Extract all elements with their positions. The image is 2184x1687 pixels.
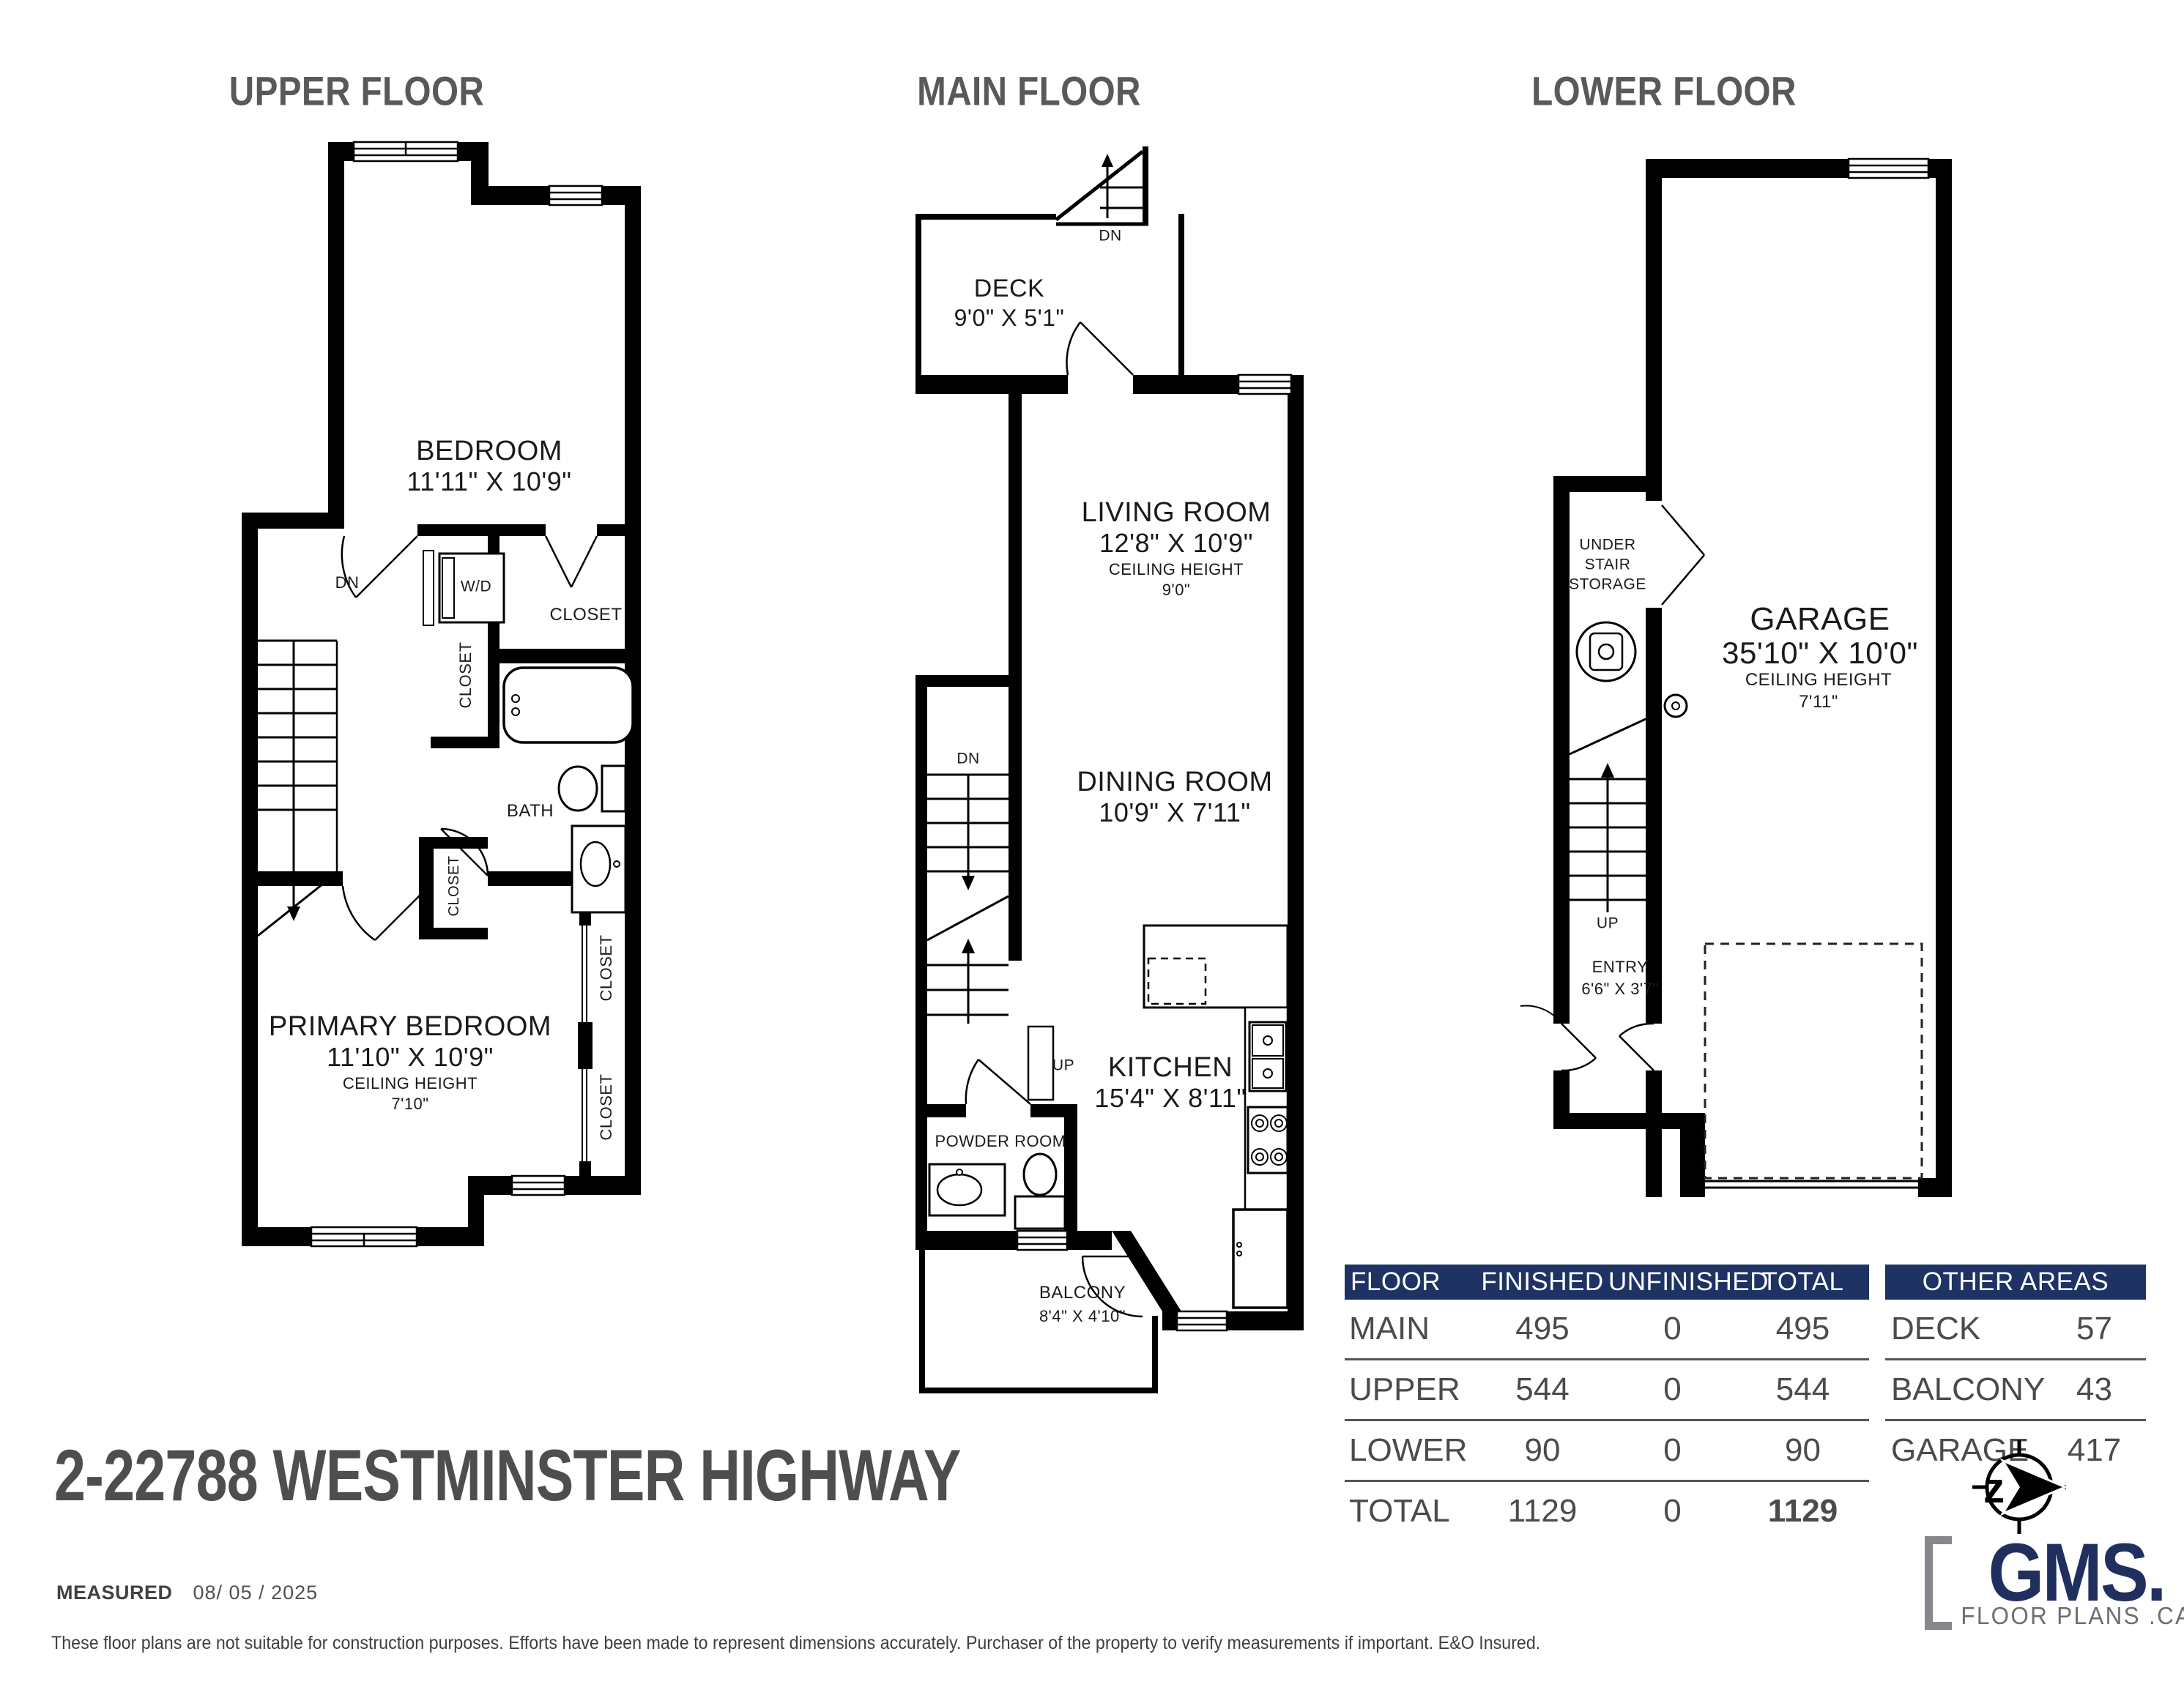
bedroom-label: BEDROOM (416, 437, 562, 465)
compass-letter: z (1983, 1464, 2005, 1512)
closet-label: CLOSET (549, 606, 622, 624)
table-row: DECK 57 (1885, 1300, 2146, 1360)
gms-logo: GMS. FLOOR PLANS .CA (1925, 1536, 2184, 1630)
table-row: BALCONY 43 (1885, 1360, 2146, 1421)
closet-label: CLOSET (447, 855, 461, 916)
kitchen-dims: 15'4" X 8'11" (1094, 1085, 1246, 1111)
under-stair-storage-label: STORAGE (1569, 577, 1646, 592)
col-header-total: TOTAL (1737, 1267, 1869, 1297)
closet-label: CLOSET (458, 641, 474, 708)
floor-plan-sheet: { "header": { "title": "2-22788 WESTMINS… (0, 0, 2184, 1687)
entry-label: ENTRY (1592, 959, 1649, 975)
ceiling-height-label: CEILING HEIGHT (1109, 562, 1244, 578)
ceiling-height-value: 7'10" (391, 1096, 428, 1112)
measured-label: MEASURED (56, 1582, 173, 1604)
balcony-dims: 8'4" X 4'10" (1039, 1308, 1126, 1325)
living-room-label: LIVING ROOM (1082, 499, 1271, 526)
dining-room-dims: 10'9" X 7'11" (1099, 800, 1250, 826)
ceiling-height-value: 7'11" (1799, 693, 1838, 711)
kitchen-label: KITCHEN (1108, 1054, 1233, 1081)
bath-label: BATH (507, 802, 554, 820)
up-label: UP (1052, 1058, 1074, 1073)
col-header-unfinished: UNFINISHED (1608, 1267, 1737, 1297)
measured-date: 08/ 05 / 2025 (193, 1582, 319, 1604)
powder-room-label: POWDER ROOM (935, 1133, 1066, 1150)
table-row-total: TOTAL 1129 0 1129 (1345, 1482, 1869, 1541)
table-row: MAIN 495 0 495 (1345, 1300, 1869, 1360)
up-label: UP (1597, 916, 1619, 931)
other-areas-header: OTHER AREAS (1885, 1265, 2146, 1300)
dn-label: DN (1099, 228, 1121, 244)
ceiling-height-value: 9'0" (1162, 582, 1190, 598)
garage-dims: 35'10" X 10'0" (1722, 638, 1918, 669)
logo-tagline: FLOOR PLANS .CA (1961, 1602, 2184, 1630)
under-stair-storage-label: STAIR (1585, 557, 1631, 573)
primary-bedroom-dims: 11'10" X 10'9" (327, 1044, 494, 1070)
garage-label: GARAGE (1750, 603, 1890, 636)
page-title: 2-22788 WESTMINSTER HIGHWAY (54, 1434, 961, 1517)
balcony-label: BALCONY (1039, 1284, 1126, 1302)
logo-bracket-left (1925, 1536, 1952, 1630)
dn-label: DN (335, 575, 360, 591)
ceiling-height-label: CEILING HEIGHT (1745, 671, 1892, 689)
col-header-floor: FLOOR (1345, 1267, 1477, 1297)
col-header-finished: FINISHED (1477, 1267, 1608, 1297)
compass-icon: z (1964, 1432, 2074, 1542)
disclaimer-text: These floor plans are not suitable for c… (51, 1633, 1540, 1654)
measured-row: MEASURED08/ 05 / 2025 (56, 1582, 318, 1604)
deck-label: DECK (974, 276, 1044, 301)
primary-bedroom-label: PRIMARY BEDROOM (269, 1013, 551, 1040)
bedroom-dims: 11'11" X 10'9" (406, 469, 571, 495)
table-row: UPPER 544 0 544 (1345, 1360, 1869, 1421)
washer-dryer-label: W/D (461, 579, 491, 595)
ceiling-height-label: CEILING HEIGHT (343, 1076, 478, 1092)
entry-dims: 6'6" X 3'7" (1581, 981, 1658, 997)
dn-label: DN (957, 751, 979, 767)
dining-room-label: DINING ROOM (1077, 768, 1272, 796)
area-summary-table: FLOOR FINISHED UNFINISHED TOTAL MAIN 495… (1345, 1265, 1869, 1541)
area-table-header: FLOOR FINISHED UNFINISHED TOTAL (1345, 1265, 1869, 1300)
closet-label: CLOSET (598, 934, 614, 1001)
table-row: LOWER 90 0 90 (1345, 1421, 1869, 1482)
closet-label: CLOSET (598, 1073, 614, 1140)
logo-brand: GMS. (1988, 1536, 2165, 1609)
under-stair-storage-label: UNDER (1579, 537, 1635, 553)
living-room-dims: 12'8" X 10'9" (1099, 530, 1253, 556)
deck-dims: 9'0" X 5'1" (954, 306, 1065, 329)
